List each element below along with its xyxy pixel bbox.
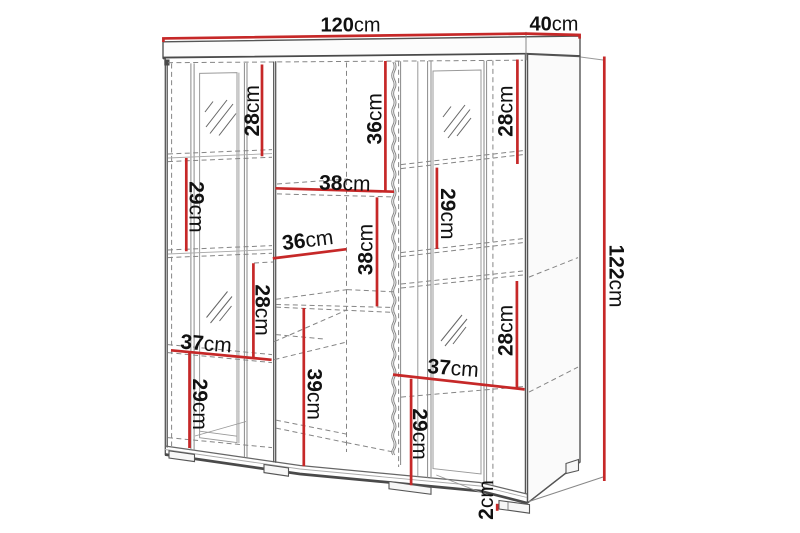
svg-text:38cm: 38cm (354, 224, 377, 275)
svg-text:29cm: 29cm (185, 181, 208, 232)
svg-text:39cm: 39cm (303, 369, 326, 420)
svg-text:40cm: 40cm (530, 14, 579, 36)
svg-text:28cm: 28cm (495, 305, 518, 356)
svg-text:38cm: 38cm (319, 172, 371, 196)
svg-text:29cm: 29cm (188, 379, 211, 430)
svg-text:2cm: 2cm (475, 480, 498, 520)
svg-text:36cm: 36cm (364, 93, 387, 144)
svg-text:28cm: 28cm (241, 85, 264, 136)
svg-text:28cm: 28cm (251, 284, 274, 335)
svg-text:29cm: 29cm (408, 408, 431, 459)
svg-text:29cm: 29cm (436, 188, 459, 239)
svg-text:122cm: 122cm (604, 244, 627, 307)
svg-text:120cm: 120cm (320, 15, 380, 37)
svg-text:37cm: 37cm (180, 331, 233, 358)
svg-text:37cm: 37cm (427, 355, 480, 382)
svg-text:28cm: 28cm (494, 86, 517, 137)
